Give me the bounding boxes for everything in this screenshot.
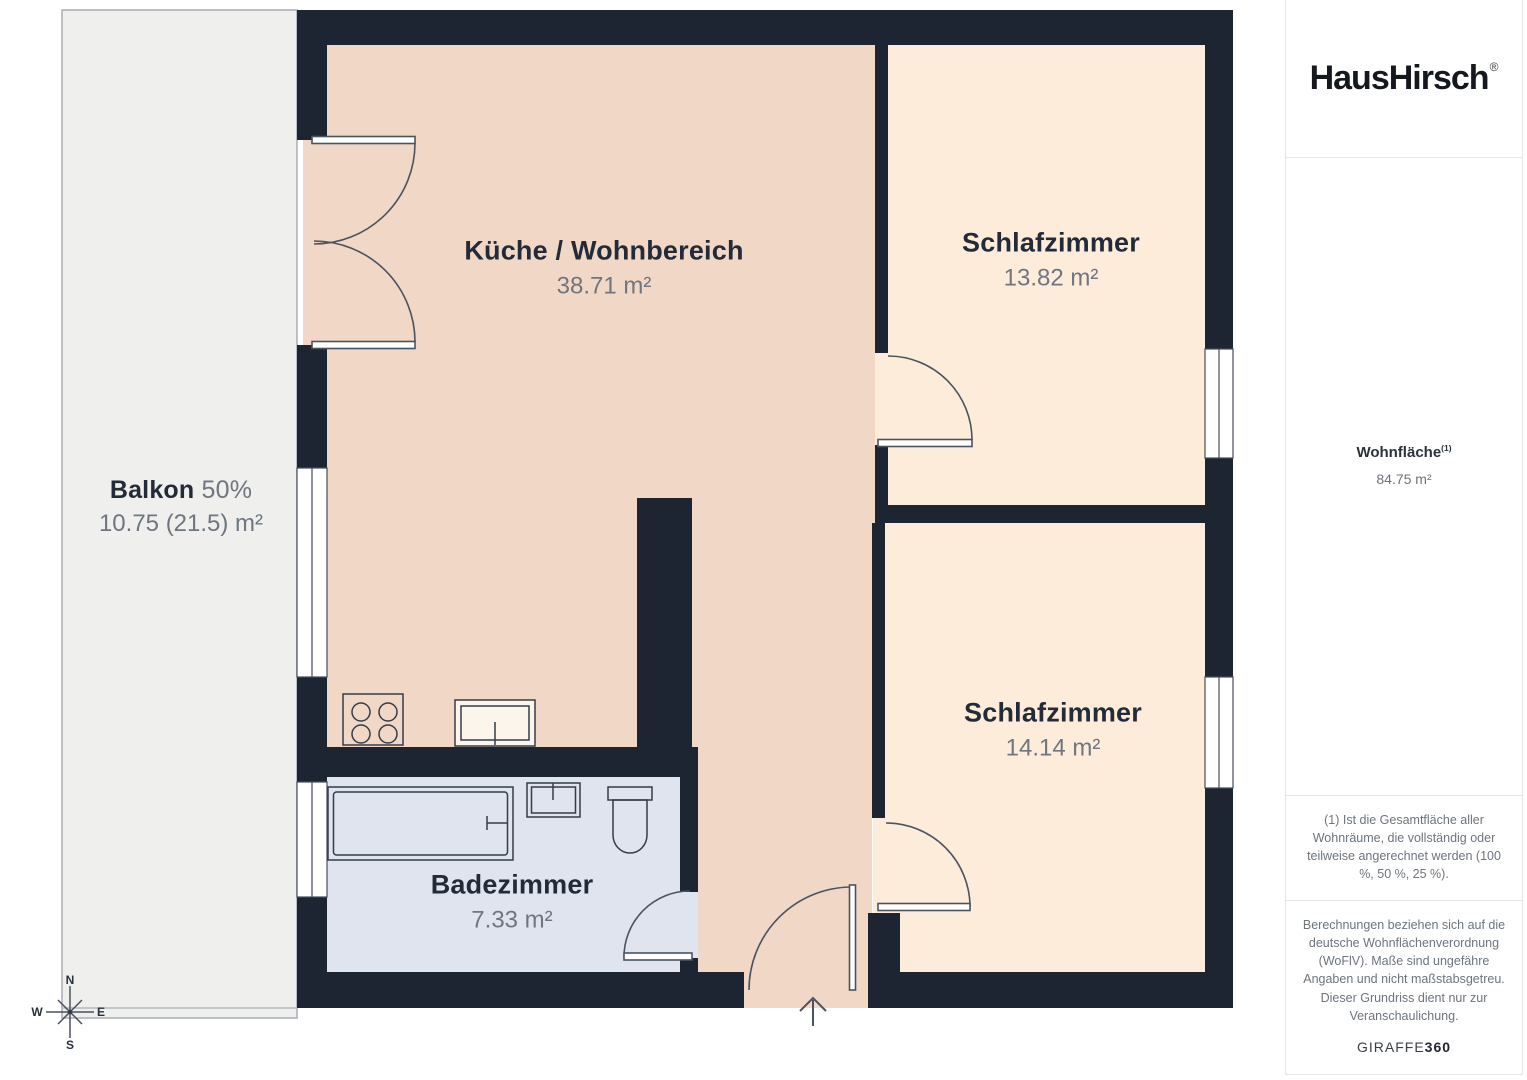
room-label-balcony: Balkon 50% 10.75 (21.5) m² (99, 476, 263, 538)
room-label-bedroom-top: Schlafzimmer 13.82 m² (962, 228, 1140, 293)
vendor-logo: GIRAFFE360 (1286, 1039, 1522, 1055)
window-kitchen-icon (297, 468, 327, 677)
room-label-bedroom-bottom: Schlafzimmer 14.14 m² (964, 698, 1142, 763)
room-label-bathroom: Badezimmer 7.33 m² (431, 870, 594, 935)
kitchen-sink-icon (455, 700, 535, 746)
compass-north-label: N (66, 973, 75, 987)
footnote-box: (1) Ist die Gesamtfläche aller Wohnräume… (1286, 795, 1522, 900)
compass-east-label: E (97, 1005, 105, 1019)
compass-south-label: S (66, 1038, 74, 1052)
compass-west-label: W (31, 1005, 43, 1019)
disclaimer-text: Berechnungen beziehen sich auf die deuts… (1286, 901, 1522, 1025)
living-area-value: 84.75 m² (1286, 471, 1522, 487)
balcony-share: 50% (202, 476, 253, 504)
living-area-block: Wohnfläche(1) 84.75 m² (1286, 443, 1522, 487)
info-sidebar: HausHirsch® Wohnfläche(1) 84.75 m² (1) I… (1285, 0, 1523, 1075)
window-bathroom-icon (297, 782, 327, 897)
logo-box: HausHirsch® (1286, 0, 1522, 158)
room-label-kitchen: Küche / Wohnbereich 38.71 m² (464, 236, 743, 301)
window-bedroom-top-icon (1205, 349, 1233, 458)
registered-mark-icon: ® (1490, 60, 1499, 74)
window-bedroom-bottom-icon (1205, 677, 1233, 788)
floorplan: N S W E (0, 0, 1285, 1080)
disclaimer-box: Berechnungen beziehen sich auf die deuts… (1286, 900, 1522, 1075)
floorplan-page: N S W E Küche / Wohnbereich 38.71 m² Sch… (0, 0, 1527, 1080)
footnote-mark: (1) (1441, 443, 1451, 453)
brand-logo: HausHirsch® (1310, 59, 1499, 98)
footnote-text: (1) Ist die Gesamtfläche aller Wohnräume… (1286, 796, 1522, 884)
stove-icon (343, 694, 403, 745)
